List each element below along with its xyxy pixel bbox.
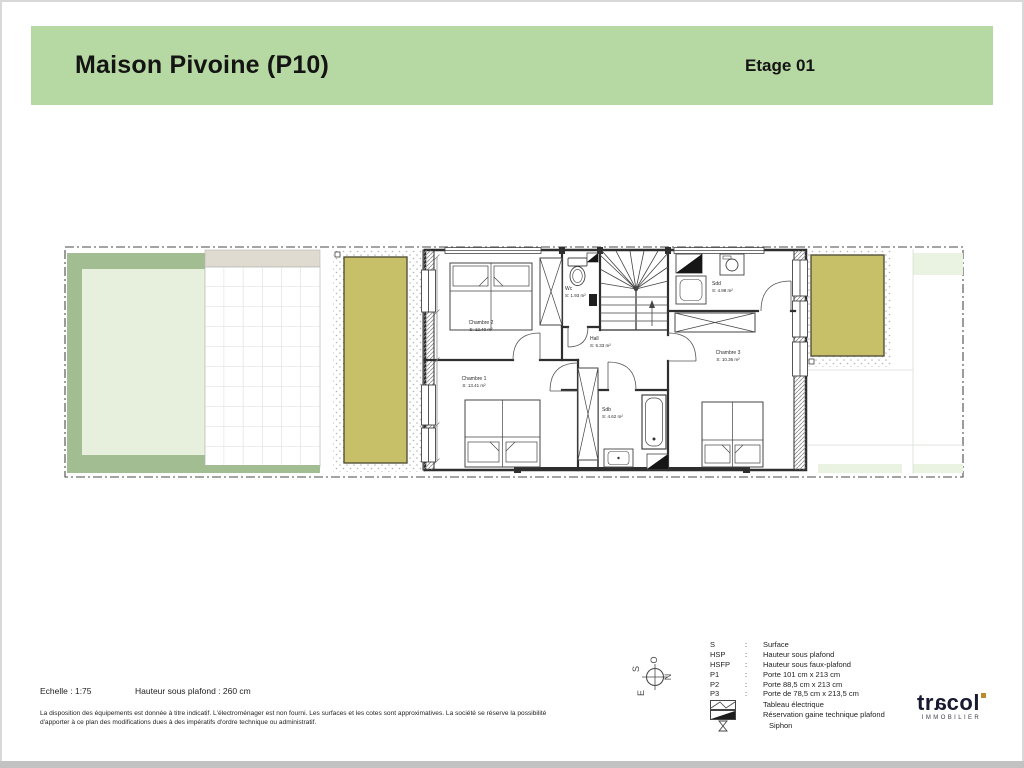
legend-row: Siphon: [710, 720, 1000, 731]
garden-area: [67, 250, 320, 473]
scale-label: Echelle : 1:75: [40, 686, 92, 696]
logo-subtitle: IMMOBILIER: [903, 715, 1000, 721]
bathtub-icon: [642, 395, 666, 449]
svg-text:S: 5.33 m²: S: 5.33 m²: [590, 343, 611, 348]
siphon-icon: [710, 720, 751, 732]
company-logo: tracol IMMOBILIER: [903, 692, 1000, 721]
compass-east-label: E: [636, 690, 646, 696]
page-edge: [0, 761, 1024, 768]
legend-row: P1:Porte 101 cm x 213 cm: [710, 670, 1000, 680]
window-icons-right: [793, 260, 808, 376]
legend-row: S:Surface: [710, 640, 1000, 650]
duct-icon-sdd: [676, 254, 702, 273]
shower-tray-icon: [676, 276, 706, 304]
electrical-panel-icon: [710, 700, 745, 710]
terrace-right: [808, 249, 963, 474]
svg-text:S: 1.93 m²: S: 1.93 m²: [565, 293, 586, 298]
room-label-sdb: Sdb: [602, 407, 611, 413]
washbasin-icon: [604, 449, 633, 467]
page-title: Maison Pivoine (P10): [75, 51, 329, 80]
logo-accent-mark: [981, 693, 986, 698]
disclaimer-text: La disposition des équipements est donné…: [40, 710, 570, 727]
floor-label: Etage 01: [745, 26, 815, 105]
svg-text:S: 4.98 m²: S: 4.98 m²: [712, 288, 733, 293]
ceiling-height-label: Hauteur sous plafond : 260 cm: [135, 686, 251, 696]
room-label-chambre2: Chambre 2: [469, 320, 494, 326]
legend-row: P2:Porte 88,5 cm x 213 cm: [710, 680, 1000, 690]
compass-south-label: S: [631, 666, 641, 672]
building: [422, 247, 808, 473]
terrace-left: [333, 249, 425, 472]
compass-rose: O S E N: [630, 652, 682, 704]
svg-text:S: 12.40 m²: S: 12.40 m²: [469, 327, 493, 332]
bed-icon-chambre3: [702, 402, 763, 467]
floor-plan-drawing: Chambre 2 S: 12.40 m² Chambre 1 S: 13.41…: [62, 243, 965, 480]
room-label-sdd: Sdd: [712, 281, 721, 287]
legend-row: HSP:Hauteur sous plafond: [710, 650, 1000, 660]
wc-radiator-icon: [589, 294, 597, 306]
header-bar: Maison Pivoine (P10) Etage 01: [31, 26, 993, 105]
room-label-wc: Wc: [565, 286, 573, 292]
ceiling-duct-icon: [710, 710, 745, 720]
room-label-chambre3: Chambre 3: [716, 350, 741, 356]
duct-icon-sdb: [647, 454, 668, 469]
bed-icon-chambre1: [465, 400, 540, 467]
compass-west-label: O: [649, 656, 659, 663]
svg-text:S: 13.41 m²: S: 13.41 m²: [462, 383, 486, 388]
svg-text:S: 4.62 m²: S: 4.62 m²: [602, 414, 623, 419]
svg-text:S: 10.36 m²: S: 10.36 m²: [716, 357, 740, 362]
logo-wordmark: tracol: [903, 692, 1000, 714]
washing-machine-icon: [720, 254, 744, 275]
duct-icon-wc: [587, 253, 598, 262]
plan-sheet-page: Maison Pivoine (P10) Etage 01: [0, 0, 1024, 768]
room-label-chambre1: Chambre 1: [462, 376, 487, 382]
room-label-hall: Hall: [590, 336, 599, 342]
legend-row: HSFP:Hauteur sous faux-plafond: [710, 660, 1000, 670]
toilet-icon: [568, 258, 587, 286]
compass-north-label: N: [663, 674, 673, 681]
